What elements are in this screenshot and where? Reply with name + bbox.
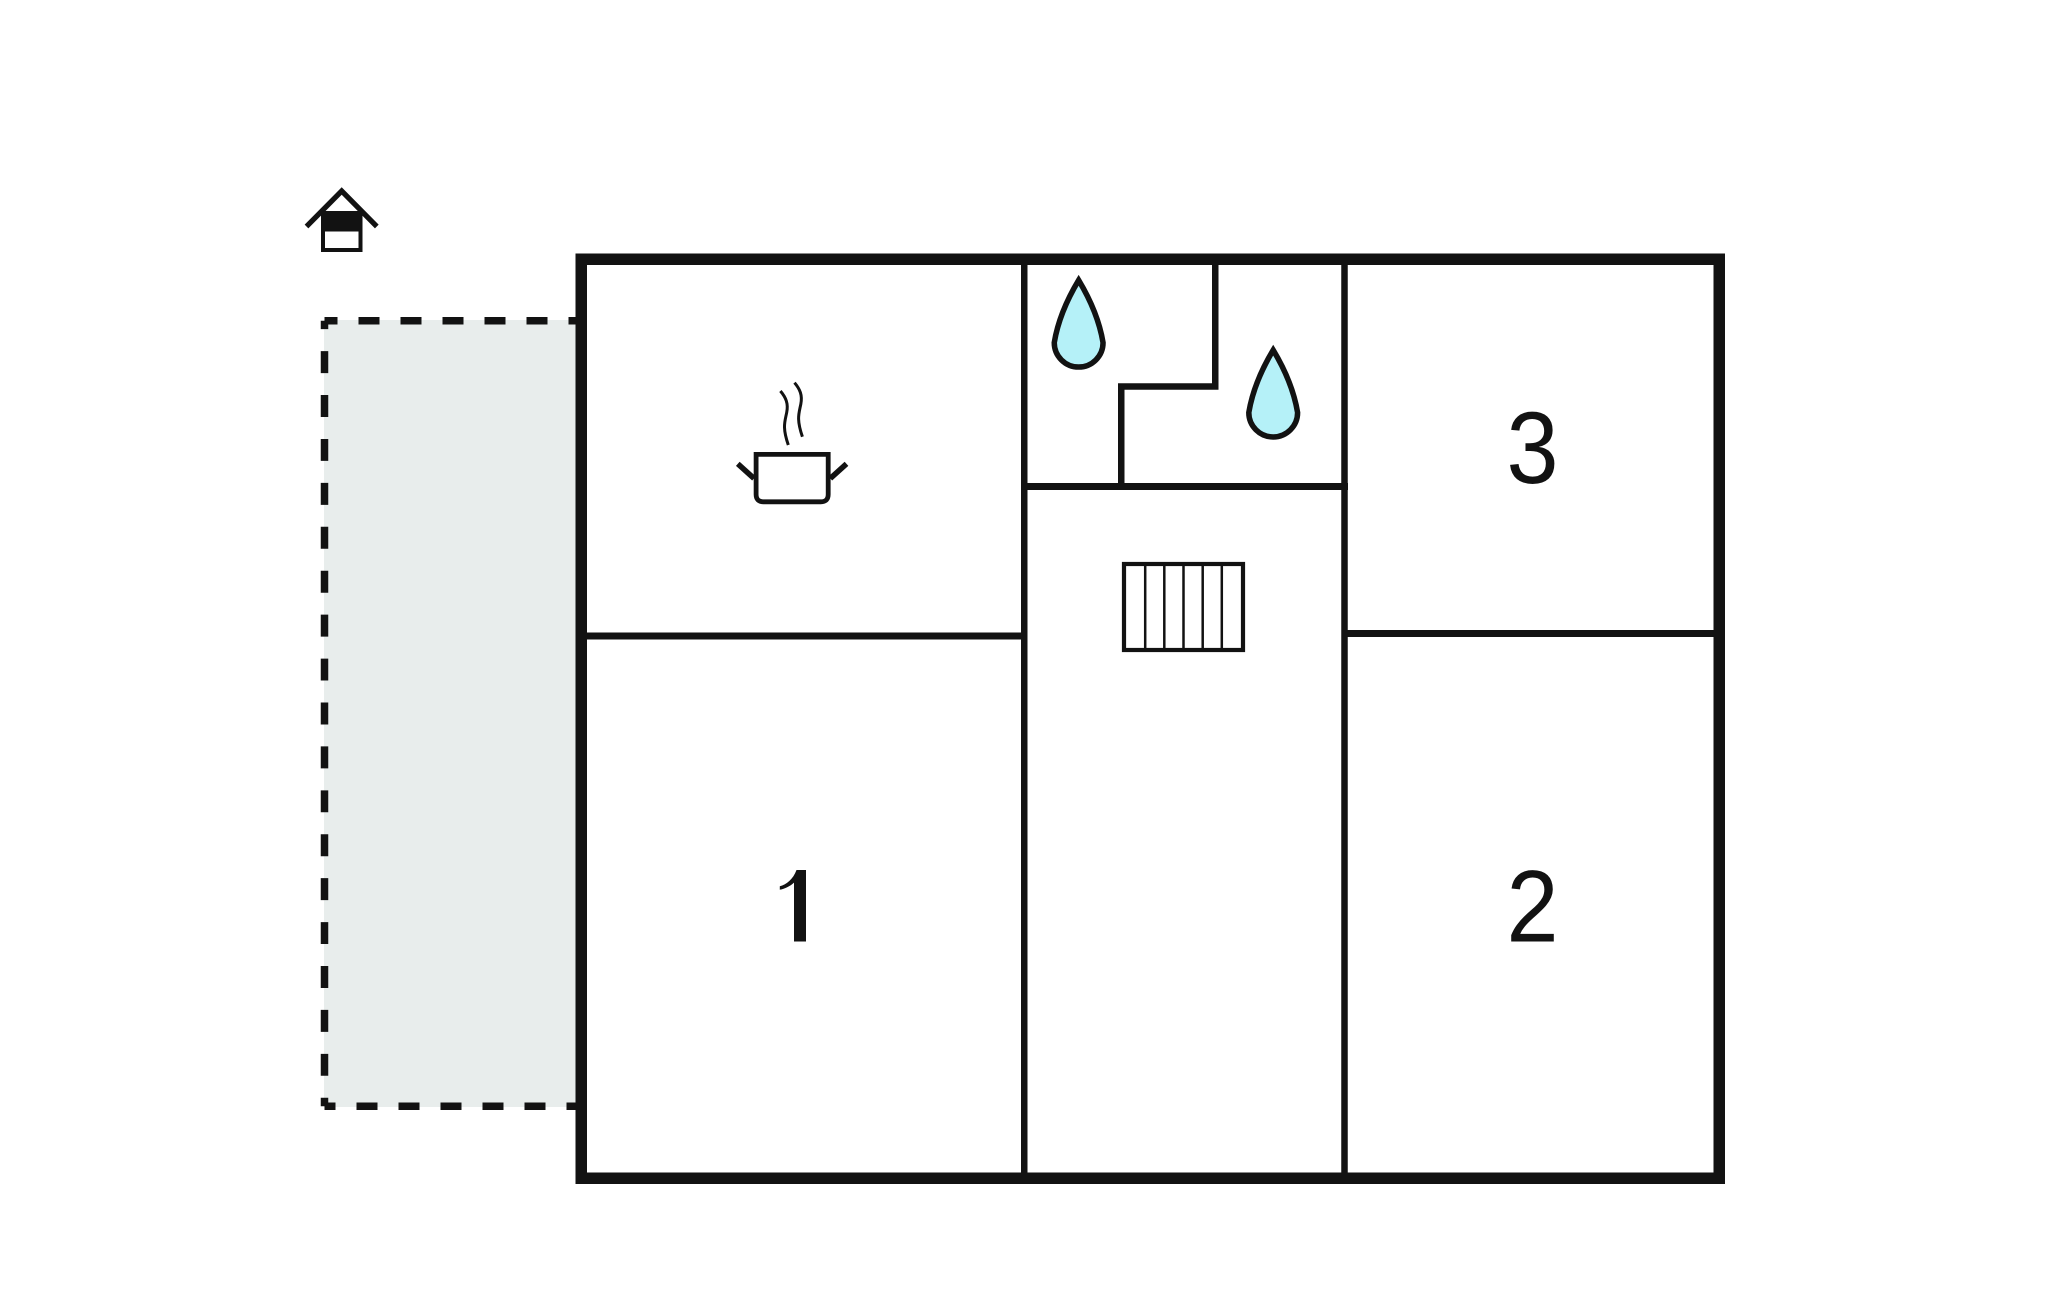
svg-text:3: 3 bbox=[1507, 391, 1559, 505]
svg-text:2: 2 bbox=[1507, 850, 1559, 964]
